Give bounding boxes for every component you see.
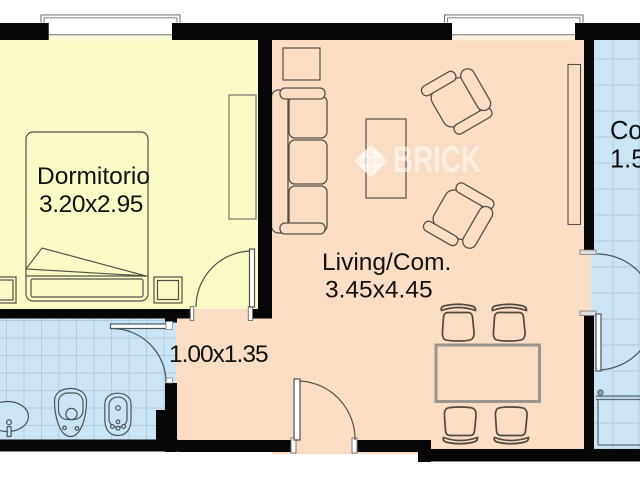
svg-text:Cocina: Cocina	[610, 117, 640, 145]
svg-text:3.20x2.95: 3.20x2.95	[39, 191, 143, 218]
svg-text:1.50x2.30: 1.50x2.30	[610, 146, 640, 174]
svg-text:Living/Com.: Living/Com.	[322, 249, 451, 276]
svg-text:Dormitorio: Dormitorio	[37, 163, 150, 190]
svg-text:3.45x4.45: 3.45x4.45	[325, 277, 433, 304]
svg-text:1.00x1.35: 1.00x1.35	[169, 341, 268, 368]
svg-text:BRICK: BRICK	[393, 139, 481, 180]
